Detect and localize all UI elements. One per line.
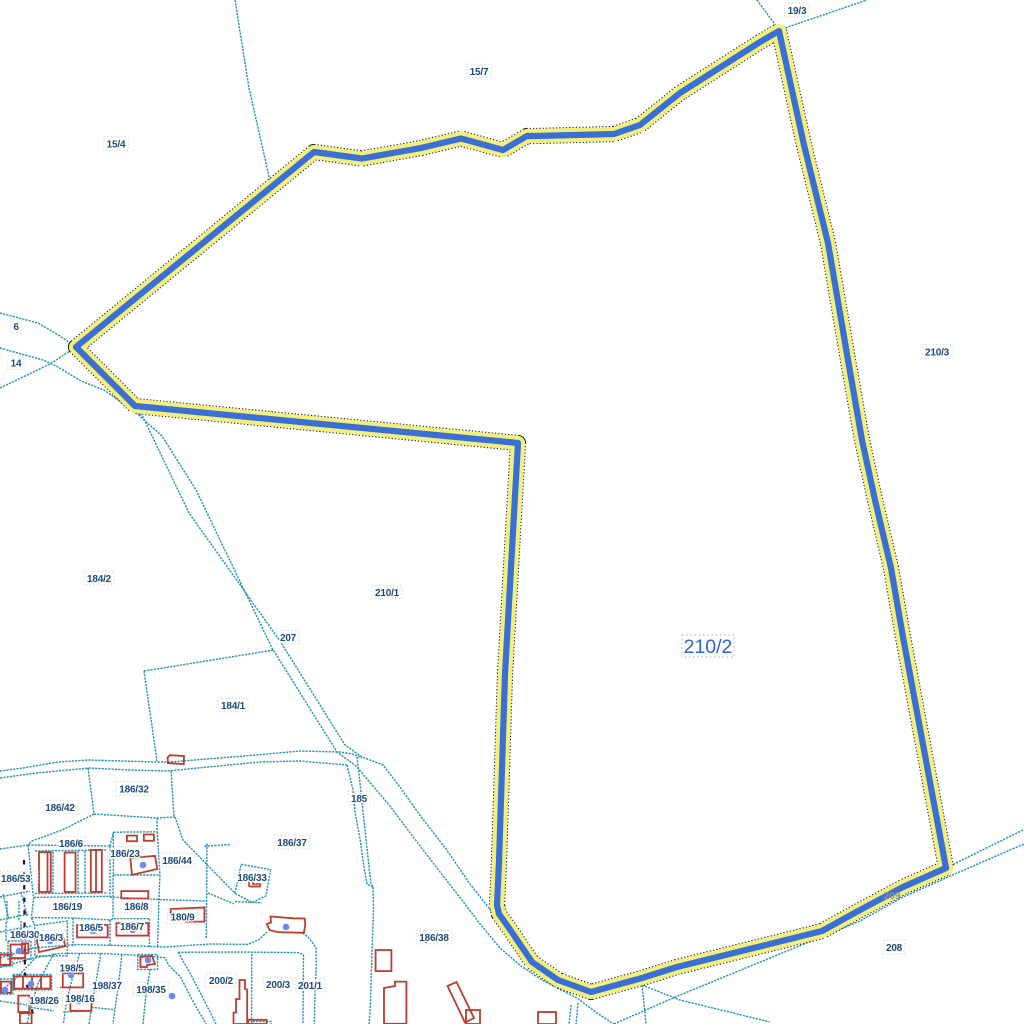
svg-text:198/35: 198/35 [136, 985, 166, 996]
svg-text:210/1: 210/1 [375, 588, 400, 599]
svg-text:207: 207 [280, 633, 297, 644]
svg-text:186/32: 186/32 [119, 785, 149, 796]
svg-text:198/26: 198/26 [29, 996, 59, 1007]
svg-text:209: 209 [884, 891, 901, 902]
svg-text:200/2: 200/2 [209, 976, 234, 987]
svg-text:201/1: 201/1 [298, 981, 323, 992]
svg-text:186/38: 186/38 [419, 933, 449, 944]
svg-text:198/5: 198/5 [59, 964, 84, 975]
svg-text:186/5: 186/5 [79, 923, 104, 934]
svg-text:186/30: 186/30 [10, 930, 40, 941]
svg-text:186/8: 186/8 [124, 902, 149, 913]
svg-text:186/44: 186/44 [162, 856, 192, 867]
svg-text:186/33: 186/33 [237, 873, 267, 884]
svg-text:186/23: 186/23 [110, 849, 140, 860]
svg-text:208: 208 [886, 943, 903, 954]
svg-text:6: 6 [13, 322, 19, 333]
svg-text:210/3: 210/3 [925, 348, 950, 359]
svg-text:210/2: 210/2 [684, 636, 733, 658]
svg-text:186/42: 186/42 [45, 803, 75, 814]
svg-text:186/37: 186/37 [277, 838, 307, 849]
svg-text:185: 185 [351, 794, 368, 805]
svg-text:14: 14 [11, 359, 22, 370]
svg-text:186/19: 186/19 [53, 902, 83, 913]
svg-text:186/53: 186/53 [1, 874, 31, 885]
svg-text:186/3: 186/3 [39, 933, 64, 944]
svg-text:198/16: 198/16 [65, 994, 95, 1005]
svg-text:180/9: 180/9 [170, 913, 195, 924]
svg-text:19/3: 19/3 [788, 6, 807, 17]
svg-text:184/1: 184/1 [221, 701, 246, 712]
svg-text:184/2: 184/2 [87, 574, 112, 585]
svg-text:200/3: 200/3 [266, 980, 291, 991]
svg-text:198/37: 198/37 [92, 981, 122, 992]
svg-text:15/4: 15/4 [107, 140, 126, 151]
svg-text:186/7: 186/7 [120, 922, 145, 933]
svg-text:186/6: 186/6 [59, 839, 84, 850]
svg-text:15/7: 15/7 [470, 67, 489, 78]
